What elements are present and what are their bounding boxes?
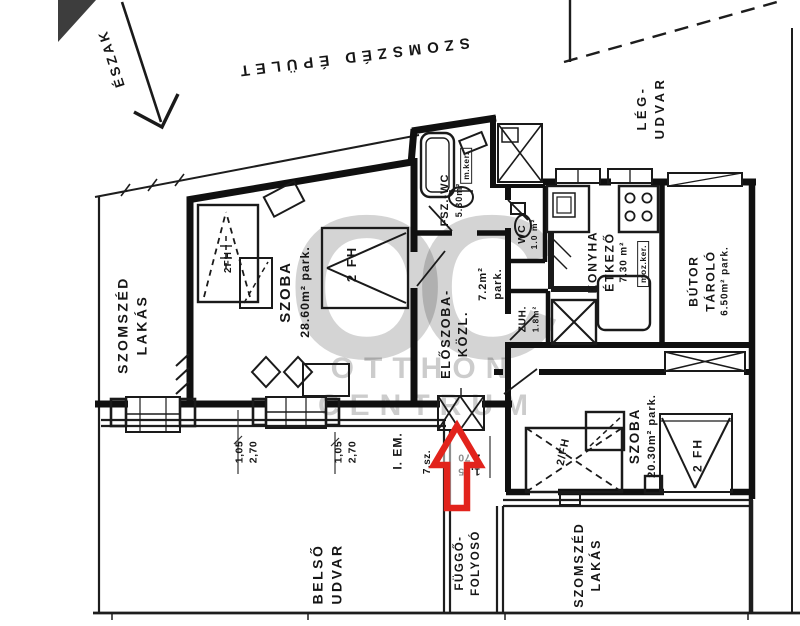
room-area: 1.8m² <box>530 306 541 333</box>
dimension-entrance: 1,05 2,70 <box>458 450 480 479</box>
label-line: UDVAR <box>328 543 347 604</box>
inner-courtyard-label: BELSŐ UDVAR <box>309 543 348 604</box>
room-label-szoba1: SZOBA 28.60m² park. <box>276 246 314 338</box>
unit-number-label: 7.sz. <box>421 450 435 474</box>
room-area: 7.2m² <box>476 267 491 301</box>
dim-height: 2,70 <box>458 450 480 464</box>
room-name-2: TÁROLÓ <box>702 246 719 315</box>
room-label-zuh: ZUH. 1.8m² <box>516 306 541 333</box>
room-name: WC <box>515 219 529 250</box>
room-name: FSZ.-WC <box>438 174 453 227</box>
room-area: 1.0 m² <box>529 219 541 250</box>
open-corridor-label: FÜGGŐ- FOLYOSÓ <box>453 530 485 596</box>
room-area: 20.30m² park. <box>645 394 660 478</box>
north-arrow <box>122 2 178 127</box>
room-name-2: ÉTKEZŐ <box>601 231 618 294</box>
floor-note-konyha: moz.ker. <box>638 241 650 287</box>
label-line: BELSŐ <box>309 543 328 604</box>
dim-width: 1,05 <box>332 441 346 463</box>
room-area-2: park. <box>491 267 506 301</box>
floor-note-fsz-wc: m.ker. <box>461 148 473 184</box>
room-label-wc: WC 1.0 m² <box>515 219 541 250</box>
label-line: LAKÁS <box>588 522 605 607</box>
dim-height: 2,70 <box>346 441 360 463</box>
room-area-eloszoba: 7.2m² park. <box>476 267 506 301</box>
room-name: KONYHA <box>585 231 602 294</box>
dim-width: 1,05 <box>233 441 247 463</box>
bed-szoba1 <box>322 228 408 308</box>
label-line: SZOMSZÉD <box>571 522 588 607</box>
room-name: ZUH. <box>516 306 530 333</box>
bed-label-szoba1: 2 FH <box>343 246 361 282</box>
room-name-2: KÖZL. <box>455 289 472 379</box>
bed-label-szoba1-extra: 2FH <box>222 251 236 273</box>
stove <box>619 186 658 232</box>
neighbor-flat-bottom-label: SZOMSZÉD LAKÁS <box>571 522 606 607</box>
room-name: ELŐSZOBA- <box>438 289 455 379</box>
room-name: SZOBA <box>626 394 645 478</box>
floor-note-text: moz.ker. <box>637 241 649 287</box>
dimension-window2: 1,05 2,70 <box>332 441 361 463</box>
bed-label-szoba2-window: 2 FH <box>690 438 707 472</box>
dimension-window1: 1,05 2,70 <box>233 441 262 463</box>
floor-note-text: m.ker. <box>460 148 472 184</box>
neighbor-flat-left-label: SZOMSZÉD LAKÁS <box>114 276 153 374</box>
room-label-konyha: KONYHA ÉTKEZŐ 7.30 m² <box>585 231 632 294</box>
dim-height: 2,70 <box>247 441 261 463</box>
chair-diamond-1 <box>252 357 280 387</box>
room-area: 7.30 m² <box>618 231 632 294</box>
room-name: BÚTOR <box>686 246 703 315</box>
room-label-szoba2: SZOBA 20.30m² park. <box>626 394 660 478</box>
room-area: 28.60m² park. <box>297 246 314 338</box>
room-area: 6.50m² park. <box>719 246 733 315</box>
floorplan-scan: OC OTTHON CENTRUM <box>0 0 800 626</box>
label-line: LÉG- <box>633 77 651 140</box>
room-label-butor-tarolo: BÚTOR TÁROLÓ 6.50m² park. <box>686 246 733 315</box>
room-name: SZOBA <box>276 246 297 338</box>
label-line: UDVAR <box>651 77 669 140</box>
dim-width: 1,05 <box>458 464 480 478</box>
label-line: LAKÁS <box>133 276 152 374</box>
label-line: FÜGGŐ- <box>453 530 469 596</box>
room-label-eloszoba: ELŐSZOBA- KÖZL. <box>438 289 473 379</box>
floor-level-label: I. EM. <box>390 432 407 469</box>
chair-diamond-2 <box>284 357 312 387</box>
scan-corner-smudge <box>58 0 96 42</box>
label-line: FOLYOSÓ <box>469 530 485 596</box>
air-shaft-label: LÉG- UDVAR <box>633 77 669 140</box>
label-line: SZOMSZÉD <box>114 276 133 374</box>
